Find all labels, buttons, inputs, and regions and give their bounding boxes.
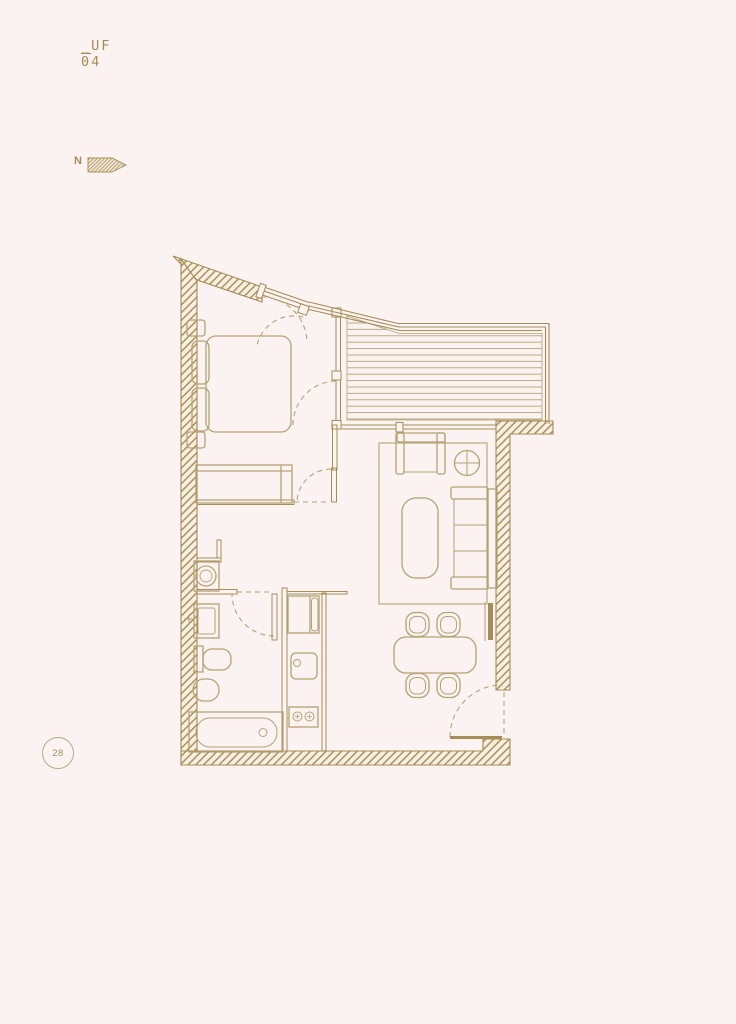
north-arrow-icon [88,158,126,172]
bedroom-door-swing [297,469,331,503]
balcony [309,302,549,424]
dining-chair [406,613,429,637]
balcony-door-swing-3 [293,381,336,425]
entry-door-swing [450,685,502,737]
mattress [206,336,291,432]
bathroom-wall [197,590,237,595]
rug [379,443,487,604]
sloped-window [261,286,309,303]
toilet [194,646,231,672]
coffee-table [402,498,438,578]
bedroom-east-wall [333,425,338,470]
kitchen-counter-edge [322,593,326,751]
dining-chair [437,613,460,637]
bathroom-door-leaf [272,594,277,640]
washing-machine [194,561,219,591]
dining-table [394,637,476,673]
side-table [455,451,480,476]
dining-chair [437,674,460,698]
wall-left [181,259,197,765]
sofa [451,487,497,589]
balcony-decking [347,316,542,420]
bedroom-door-leaf [332,468,337,502]
wall-right [496,421,553,690]
armchair [396,433,445,474]
floor-plan [0,0,736,1024]
bathtub [189,712,283,752]
wardrobe [196,465,292,503]
kitchen-counter-return [287,592,347,595]
fridge [288,596,319,633]
bed [187,320,291,448]
wall-console [485,602,493,641]
bedroom-south-wall [197,500,294,505]
hob [289,707,318,727]
sink [291,653,317,679]
bathroom-door-swing [232,594,274,636]
dining-chair [406,674,429,698]
balcony-door-swing-2 [257,316,303,345]
closet-wall-v [217,540,221,558]
